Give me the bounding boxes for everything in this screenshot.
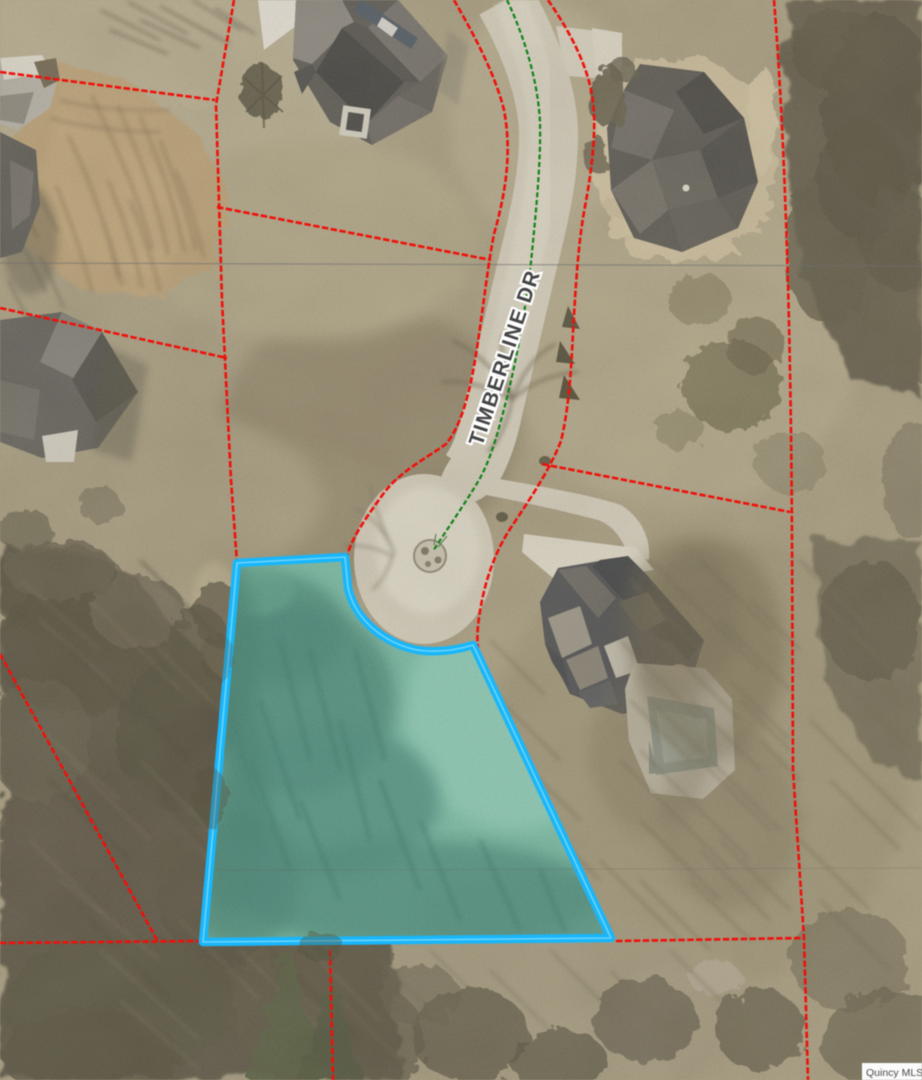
svg-text:Quincy MLS: Quincy MLS <box>866 1067 922 1079</box>
